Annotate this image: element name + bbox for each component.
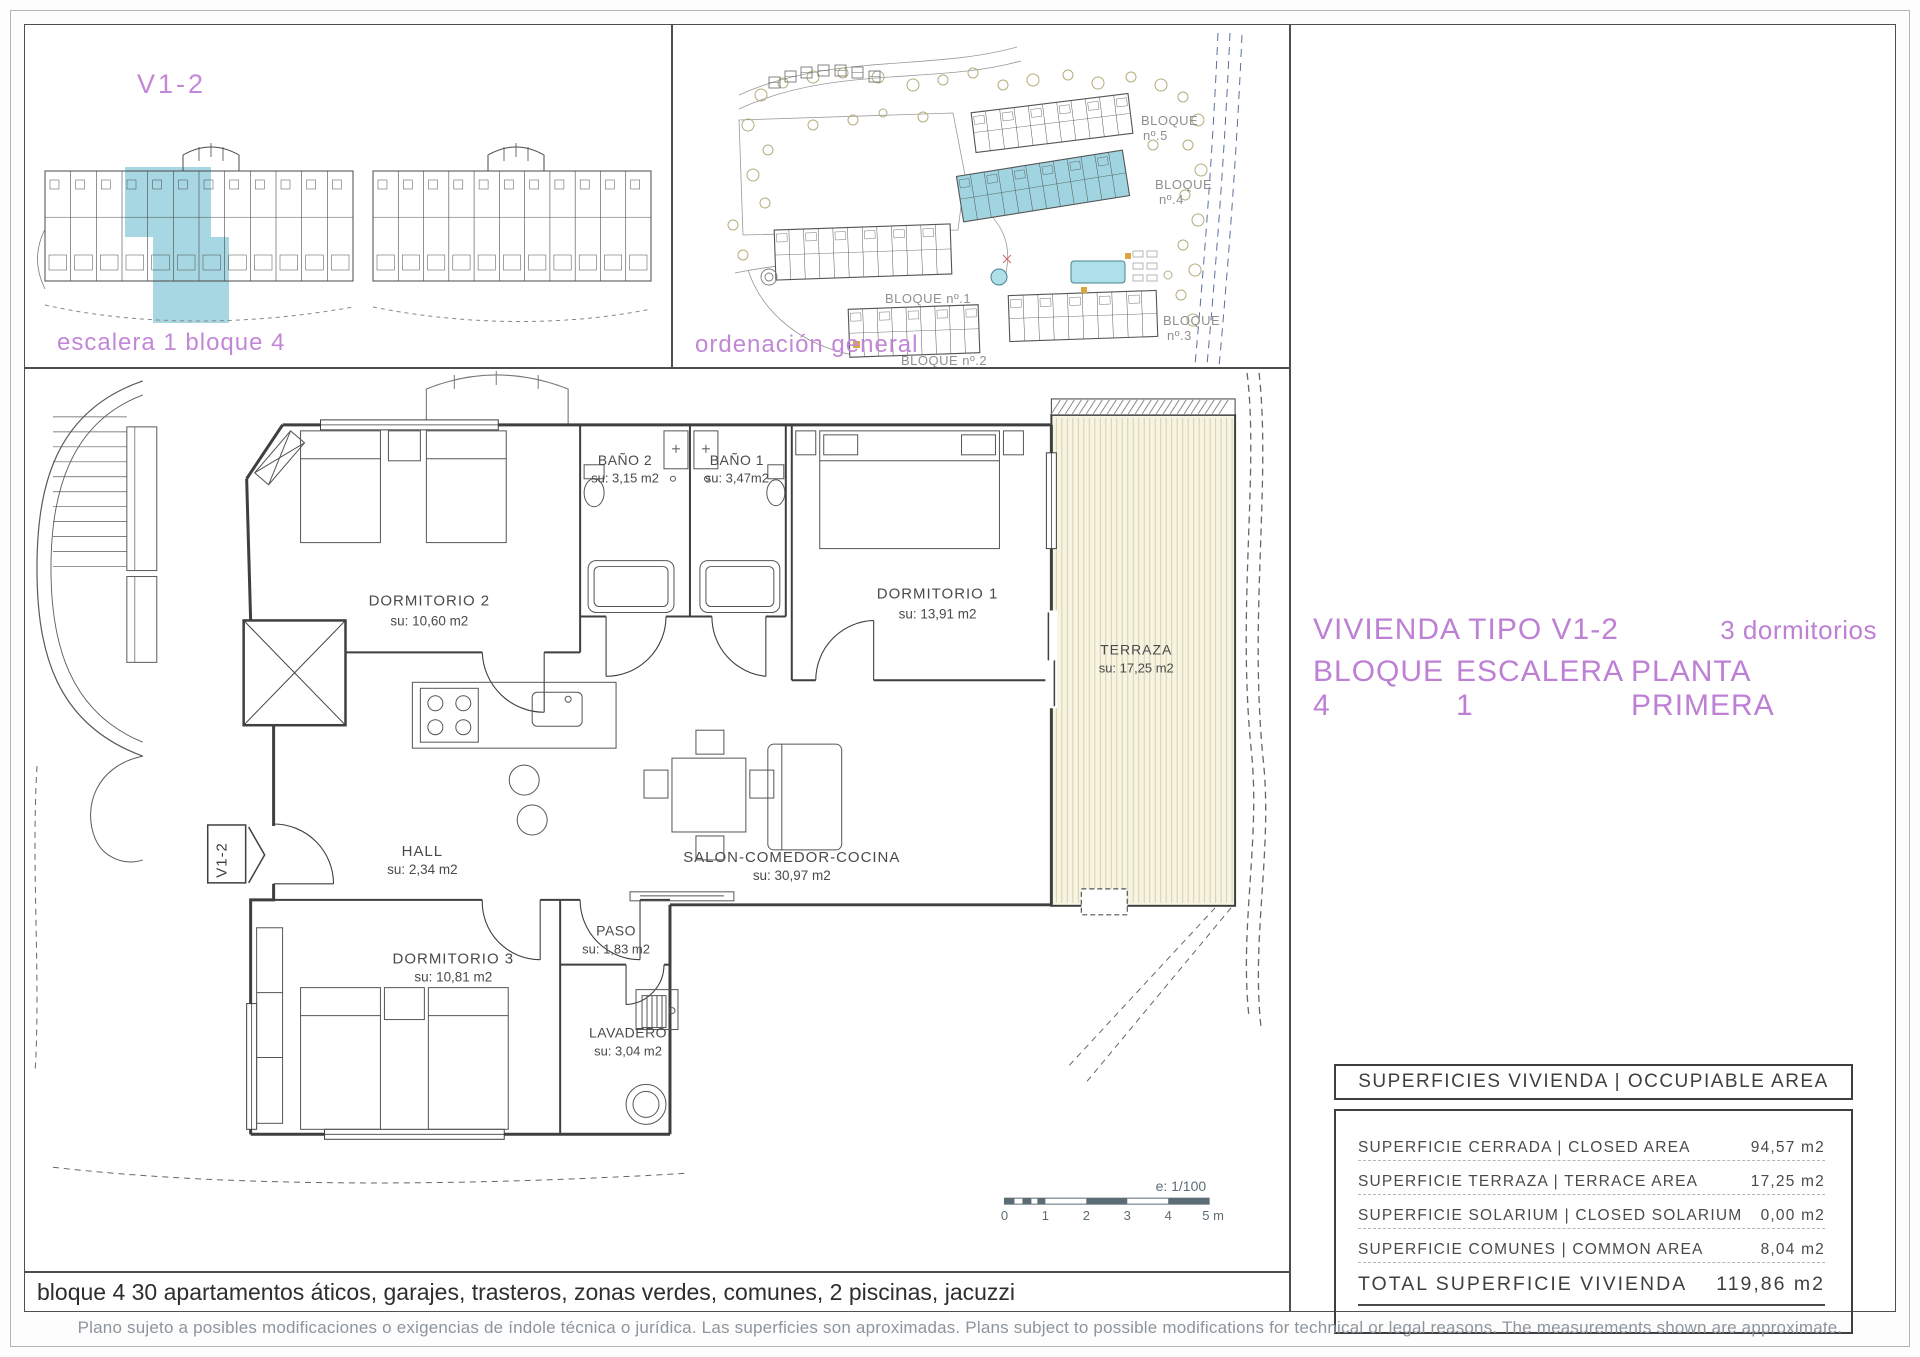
scale-tick-2: 2 xyxy=(1083,1208,1090,1223)
table-row-terraza: SUPERFICIE TERRAZA | TERRACE AREA 17,25 … xyxy=(1358,1161,1825,1195)
scale-tick-1: 1 xyxy=(1042,1208,1049,1223)
disclaimer-footer: Plano sujeto a posibles modificaciones o… xyxy=(0,1318,1920,1338)
room-area-paso: su: 1,83 m2 xyxy=(582,942,650,957)
site-plan-drawing: BLOQUEnº.5 BLOQUEnº.4 BLOQUE nº.1 BLOQUE… xyxy=(673,25,1289,367)
plan-sheet: V1-2 escalera 1 bloque 4 xyxy=(0,0,1920,1357)
block3-label: BLOQUEnº.3 xyxy=(1163,313,1220,343)
title-dormitorios: 3 dormitorios xyxy=(1720,615,1877,646)
ventilation-shaft xyxy=(244,620,346,725)
areas-table: SUPERFICIES VIVIENDA | OCCUPIABLE AREA S… xyxy=(1334,1064,1853,1334)
roof-bulkhead xyxy=(426,371,568,425)
room-label-salon: SALON-COMEDOR-COCINA xyxy=(683,849,900,866)
scale-label: e: 1/100 xyxy=(1156,1178,1207,1194)
room-area-dormitorio3: su: 10,81 m2 xyxy=(414,970,492,985)
table-row-cerrada: SUPERFICIE CERRADA | CLOSED AREA 94,57 m… xyxy=(1358,1127,1825,1161)
scale-bar: e: 1/100 0 1 2 3 4 5 m xyxy=(1001,1178,1224,1223)
room-area-dormitorio2: su: 10,60 m2 xyxy=(390,613,468,628)
building-strip-drawing xyxy=(33,109,665,339)
room-label-lavadero: LAVADERO xyxy=(589,1025,667,1041)
sun-loungers xyxy=(1133,251,1157,281)
table-row-solarium: SUPERFICIE SOLARIUM | CLOSED SOLARIUM 0,… xyxy=(1358,1195,1825,1229)
table-row-comunes: SUPERFICIE COMUNES | COMMON AREA 8,04 m2 xyxy=(1358,1229,1825,1263)
highlighted-unit xyxy=(125,167,229,323)
door-swings xyxy=(274,616,874,1004)
scale-tick-4: 4 xyxy=(1165,1208,1172,1223)
locator-caption: escalera 1 bloque 4 xyxy=(57,329,285,357)
room-area-salon: su: 30,97 m2 xyxy=(753,868,831,883)
scale-tick-3: 3 xyxy=(1124,1208,1131,1223)
title-escalera: ESCALERA 1 xyxy=(1456,655,1631,723)
title-block: VIVIENDA TIPO V1-2 3 dormitorios BLOQUE … xyxy=(1313,613,1877,723)
scale-tick-5: 5 m xyxy=(1202,1208,1224,1223)
title-line2: BLOQUE 4 ESCALERA 1 PLANTA PRIMERA xyxy=(1313,655,1877,723)
table-row-total: TOTAL SUPERFICIE VIVIENDA 119,86 m2 xyxy=(1358,1273,1825,1306)
panel-title: VIVIENDA TIPO V1-2 3 dormitorios BLOQUE … xyxy=(1290,24,1896,1312)
room-label-dormitorio3: DORMITORIO 3 xyxy=(393,951,515,968)
unit-type-label: V1-2 xyxy=(137,69,206,100)
room-label-paso: PASO xyxy=(596,923,636,939)
title-vivienda-tipo: VIVIENDA TIPO V1-2 xyxy=(1313,613,1619,647)
panel-floor-plan: V1-2 DORMITORIO 2 su: 10,60 m2 BAÑO 2 su… xyxy=(24,368,1290,1272)
jacuzzi xyxy=(991,269,1007,285)
terrace-unit-dashed xyxy=(1081,889,1127,915)
building-blocks xyxy=(774,94,1158,358)
room-label-bano2: BAÑO 2 xyxy=(598,452,652,468)
block1-label: BLOQUE nº.1 xyxy=(885,291,971,306)
room-label-dormitorio1: DORMITORIO 1 xyxy=(877,585,999,602)
title-bloque: BLOQUE 4 xyxy=(1313,655,1456,723)
entry-marker-label: V1-2 xyxy=(214,842,231,878)
areas-table-body: SUPERFICIE CERRADA | CLOSED AREA 94,57 m… xyxy=(1334,1109,1853,1334)
title-planta: PLANTA PRIMERA xyxy=(1631,655,1877,723)
block4-label: BLOQUEnº.4 xyxy=(1155,177,1212,207)
room-label-bano1: BAÑO 1 xyxy=(710,452,764,468)
room-label-hall: HALL xyxy=(402,843,443,860)
panel-site-plan: BLOQUEnº.5 BLOQUEnº.4 BLOQUE nº.1 BLOQUE… xyxy=(672,24,1290,368)
areas-table-header: SUPERFICIES VIVIENDA | OCCUPIABLE AREA xyxy=(1334,1064,1853,1100)
stair-core xyxy=(37,381,157,862)
panel-unit-locator: V1-2 escalera 1 bloque 4 xyxy=(24,24,672,368)
terrace-sliding-door xyxy=(1045,610,1057,708)
room-area-dormitorio1: su: 13,91 m2 xyxy=(899,606,977,621)
room-label-terraza: TERRAZA xyxy=(1100,641,1172,657)
unit-entry-marker: V1-2 xyxy=(208,825,265,883)
room-area-terraza: su: 17,25 m2 xyxy=(1099,660,1174,675)
room-area-lavadero: su: 3,04 m2 xyxy=(594,1043,662,1058)
room-area-hall: su: 2,34 m2 xyxy=(387,862,457,877)
scale-tick-0: 0 xyxy=(1001,1208,1008,1223)
room-area-bano1: su: 3,47m2 xyxy=(705,471,769,486)
room-label-dormitorio2: DORMITORIO 2 xyxy=(369,592,491,609)
site-caption: ordenación general xyxy=(695,331,919,359)
project-summary-strip: bloque 4 30 apartamentos áticos, garajes… xyxy=(24,1272,1290,1312)
pool xyxy=(1071,261,1125,283)
room-area-bano2: su: 3,15 m2 xyxy=(591,471,659,486)
floor-plan-drawing: V1-2 DORMITORIO 2 su: 10,60 m2 BAÑO 2 su… xyxy=(25,369,1289,1271)
block5-label: BLOQUEnº.5 xyxy=(1141,113,1198,143)
